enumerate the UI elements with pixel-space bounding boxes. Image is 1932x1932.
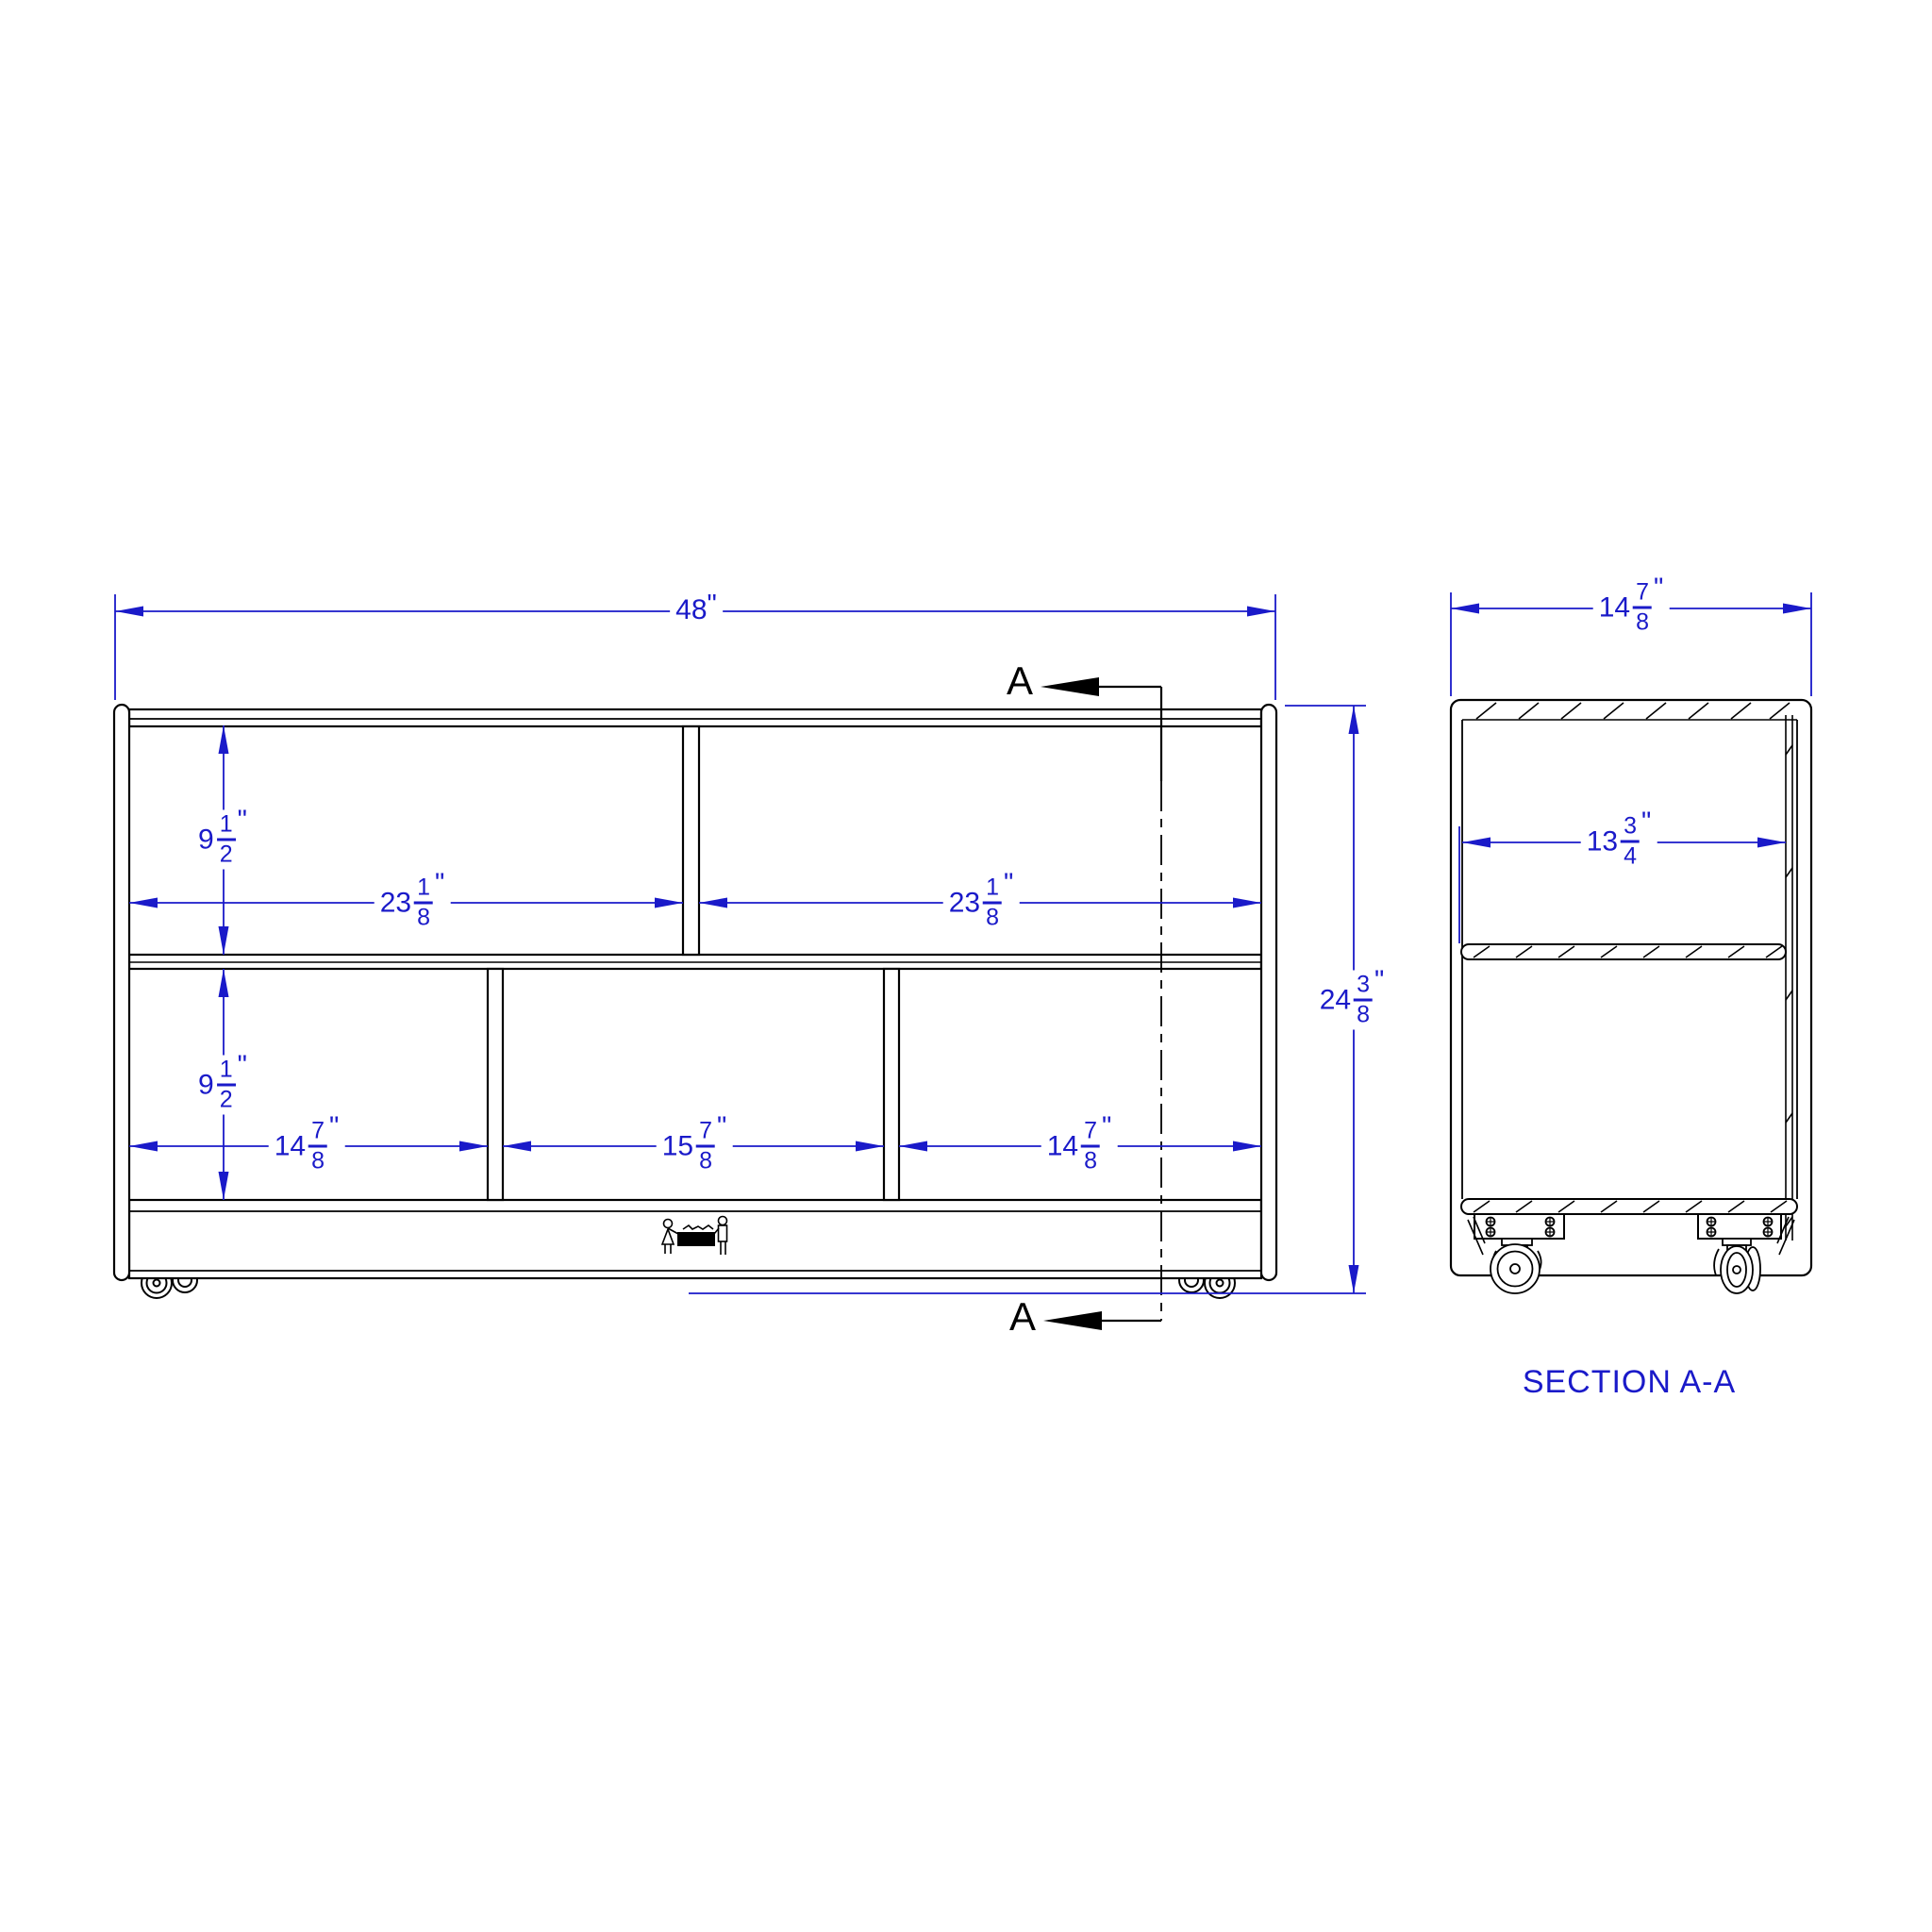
section-arrow-top-icon [1041, 677, 1099, 696]
fraction-denominator: 8 [311, 1148, 325, 1174]
section-middle-shelf [1461, 944, 1786, 959]
fraction-numerator: 7 [308, 1119, 327, 1148]
dim-top-right-opening: 23 18 " [943, 874, 1020, 933]
dim-value: 23 [949, 889, 980, 917]
bottom-row-divider-left [488, 969, 503, 1200]
fraction: 78 [1081, 1119, 1100, 1174]
dim-value: 14 [275, 1132, 306, 1160]
front-view [114, 705, 1276, 1298]
fraction-denominator: 2 [220, 841, 233, 868]
fraction-numerator: 7 [696, 1119, 715, 1148]
fraction-denominator: 8 [986, 905, 999, 931]
drawing-sheet: 48" 9 12 " 9 12 " 23 18 " 23 18 " 14 78 … [0, 0, 1932, 1932]
dim-overall-width: 48" [670, 594, 723, 626]
fraction-numerator: 1 [217, 812, 236, 841]
fraction-denominator: 4 [1624, 843, 1637, 870]
dim-value: 9 [198, 1071, 214, 1099]
dim-bottom-right-opening: 14 78 " [1041, 1117, 1118, 1176]
section-shell [1451, 700, 1811, 1275]
dim-overall-depth: 14 78 " [1593, 578, 1670, 638]
fraction-numerator: 3 [1621, 814, 1640, 843]
dim-bottom-left-opening: 14 78 " [269, 1117, 345, 1176]
dim-overall-width-value: 48 [675, 596, 707, 625]
drawing-canvas [0, 0, 1932, 1932]
inch-mark: " [1374, 968, 1384, 995]
dim-overall-height: 24 38 " [1314, 971, 1391, 1030]
inch-mark: " [1654, 575, 1663, 603]
section-view [1451, 700, 1811, 1293]
inch-mark: " [708, 591, 717, 619]
section-view-title: SECTION A-A [1523, 1366, 1736, 1398]
fraction: 18 [414, 875, 433, 931]
fraction-denominator: 2 [220, 1087, 233, 1113]
fraction-denominator: 8 [417, 905, 430, 931]
section-arrow-bottom-icon [1043, 1311, 1102, 1330]
front-top-panel [129, 709, 1261, 726]
fraction: 12 [217, 812, 236, 868]
fraction-denominator: 8 [699, 1148, 712, 1174]
dim-interior-depth: 13 34 " [1581, 812, 1657, 872]
section-marker-bottom: A [1008, 1297, 1038, 1337]
fraction: 18 [983, 875, 1002, 931]
fraction-denominator: 8 [1636, 609, 1649, 636]
inch-mark: " [238, 1053, 247, 1080]
section-bottom-shelf [1461, 1199, 1797, 1214]
dim-value: 23 [380, 889, 411, 917]
section-marker-top: A [1005, 661, 1035, 701]
inch-mark: " [1102, 1114, 1111, 1141]
fraction: 78 [308, 1119, 327, 1174]
dim-value: 15 [662, 1132, 693, 1160]
bottom-row-divider-right [884, 969, 899, 1200]
fraction-numerator: 3 [1354, 973, 1373, 1002]
inch-mark: " [435, 871, 444, 898]
fraction-numerator: 1 [217, 1058, 236, 1087]
dim-bottom-middle-opening: 15 78 " [657, 1117, 733, 1176]
fraction-denominator: 8 [1357, 1002, 1370, 1028]
dim-bottom-row-height: 9 12 " [192, 1056, 253, 1115]
dim-value: 13 [1587, 827, 1618, 856]
dim-top-row-height: 9 12 " [192, 810, 253, 870]
fraction: 78 [696, 1119, 715, 1174]
dim-value: 24 [1320, 986, 1351, 1014]
inch-mark: " [329, 1114, 339, 1141]
dim-value: 14 [1047, 1132, 1078, 1160]
fraction: 38 [1354, 973, 1373, 1028]
inch-mark: " [1641, 809, 1651, 837]
front-middle-shelf [129, 955, 1261, 969]
fraction-denominator: 8 [1084, 1148, 1097, 1174]
inch-mark: " [717, 1114, 726, 1141]
dim-top-left-opening: 23 18 " [375, 874, 451, 933]
fraction: 12 [217, 1058, 236, 1113]
top-row-divider [683, 726, 699, 955]
dim-value: 14 [1599, 593, 1630, 622]
fraction-numerator: 7 [1633, 580, 1652, 609]
inch-mark: " [1004, 871, 1013, 898]
fraction: 34 [1621, 814, 1640, 870]
fraction-numerator: 1 [983, 875, 1002, 905]
fraction: 78 [1633, 580, 1652, 636]
inch-mark: " [238, 808, 247, 835]
fraction-numerator: 7 [1081, 1119, 1100, 1148]
dim-value: 9 [198, 825, 214, 854]
fraction-numerator: 1 [414, 875, 433, 905]
